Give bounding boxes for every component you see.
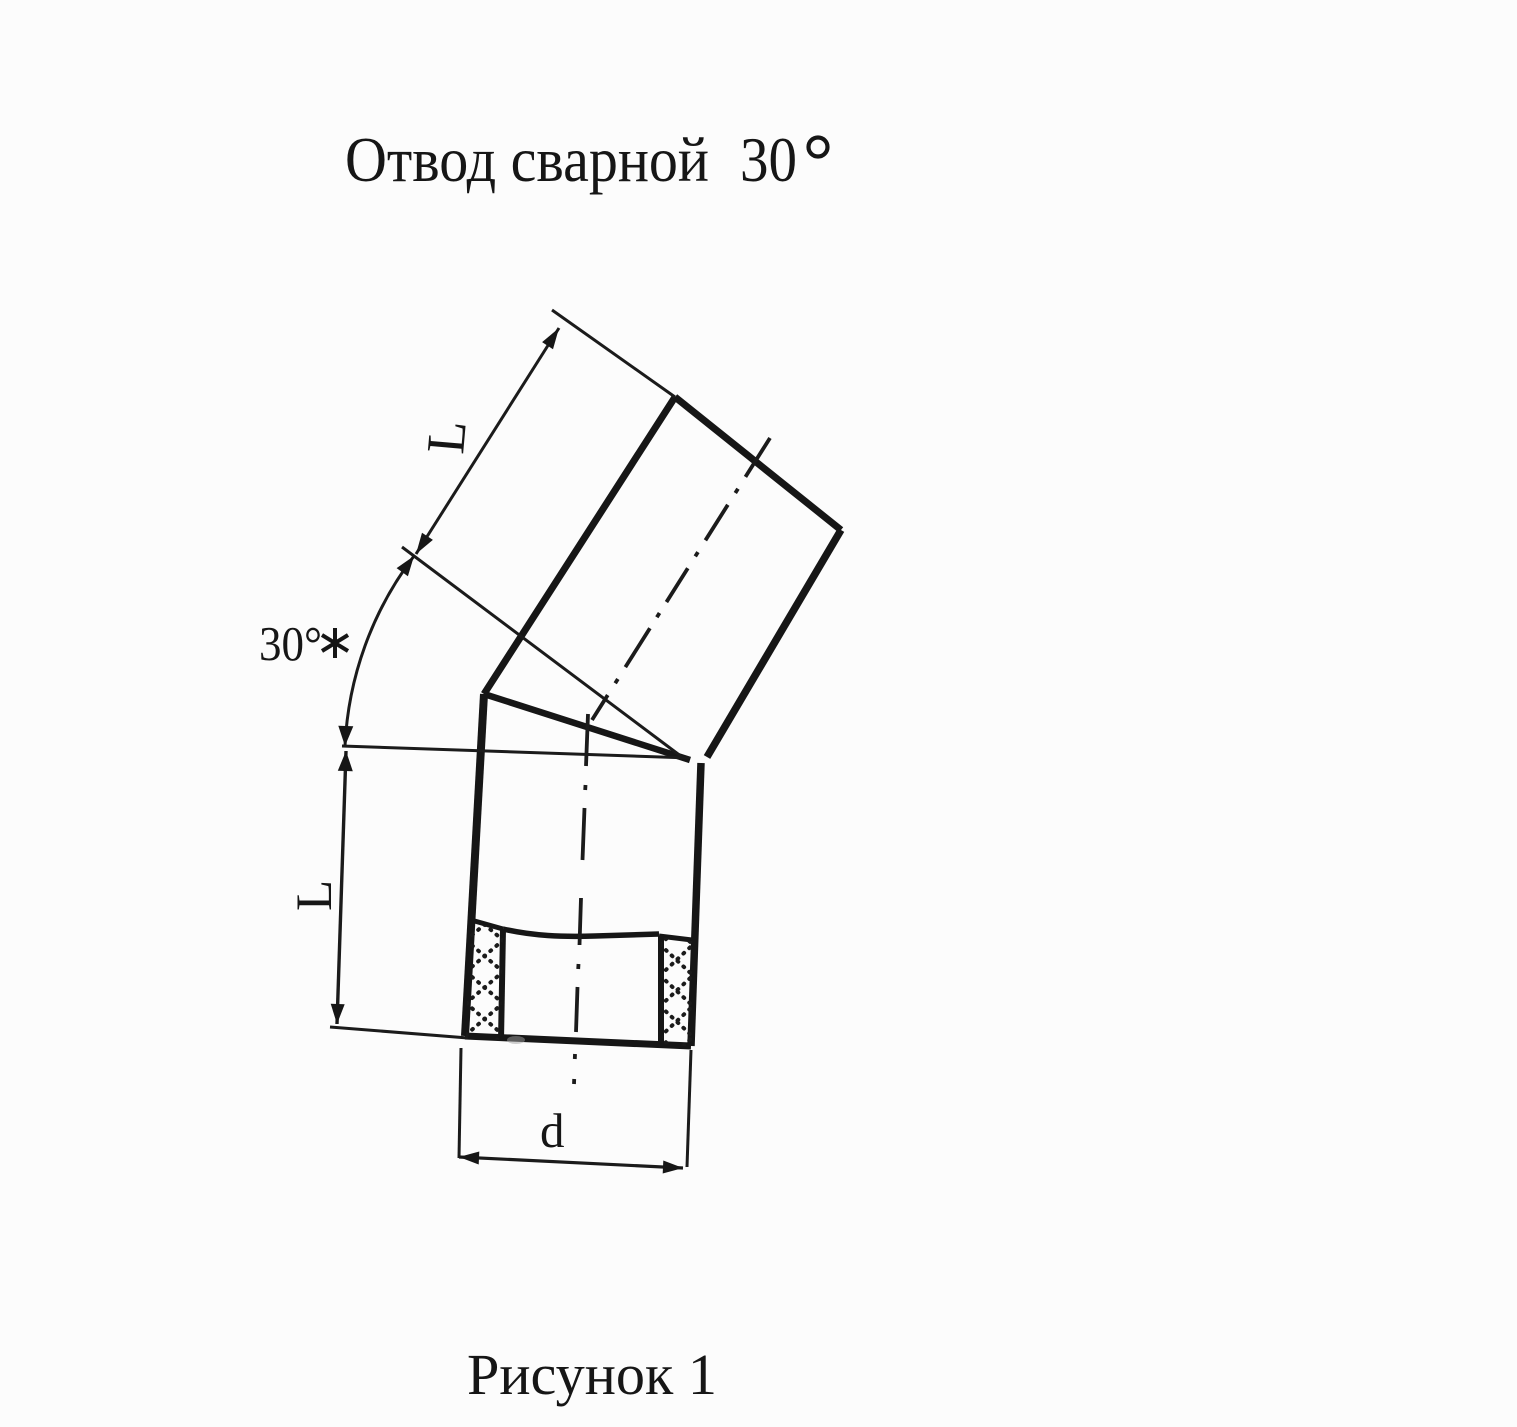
svg-text:Отвод сварной: Отвод сварной <box>345 125 709 195</box>
svg-text:d: d <box>540 1103 565 1158</box>
svg-text:30°: 30° <box>259 616 322 671</box>
svg-text:L: L <box>287 880 343 911</box>
svg-text:30: 30 <box>740 125 797 195</box>
svg-text:L: L <box>415 418 478 456</box>
svg-text:Рисунок 1: Рисунок 1 <box>467 1342 717 1407</box>
